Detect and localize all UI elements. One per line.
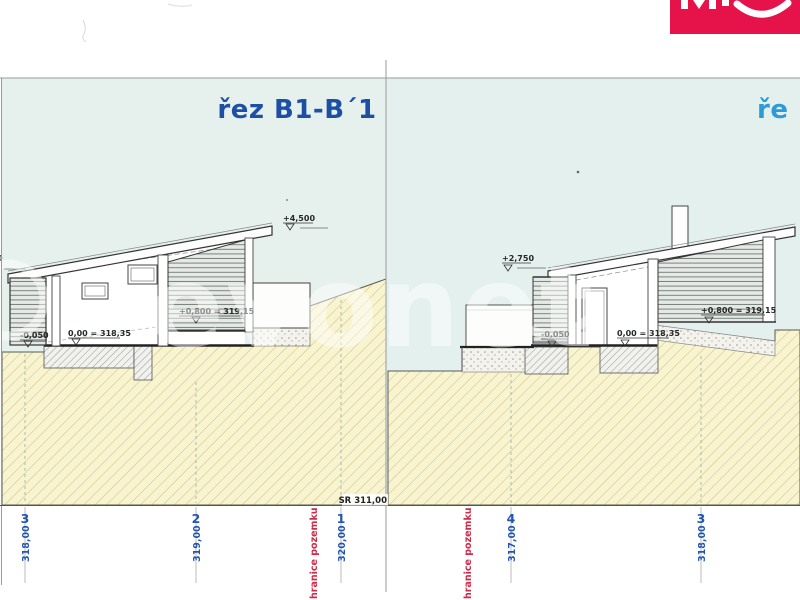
station-number: 4 — [507, 511, 516, 526]
station-elevation: 318,00 — [697, 525, 708, 562]
evonet-logo — [670, 0, 800, 34]
station-elevation: 317,00 — [507, 525, 518, 562]
left-window-1 — [82, 283, 108, 299]
section-drawing-sheet: +4,500 +0,800 = 319,15 0,00 = 318,35 -0,… — [0, 0, 800, 600]
left-section-title: řez B1-B´1 — [217, 95, 376, 125]
left-footing — [44, 346, 134, 368]
station-number: 3 — [697, 511, 706, 526]
station-elevation: 319,00 — [192, 525, 203, 562]
label-upper-floor: +0,800 = 319,15 — [701, 306, 777, 315]
station-number: 2 — [192, 511, 201, 526]
left-wall-post — [52, 276, 60, 346]
right-boundary-label: hranice pozemku — [463, 507, 474, 599]
station-elevation: 318,00 — [21, 525, 32, 562]
label-ridge: +4,500 — [283, 214, 315, 223]
right-section-title: ře — [757, 95, 788, 125]
right-footing-mid — [600, 346, 658, 373]
datum-label: SR 311,00 — [339, 494, 388, 506]
label-floor: 0,00 = 318,35 — [68, 329, 131, 338]
watermark-text: evonet — [148, 243, 595, 373]
station-number: 3 — [21, 511, 30, 526]
datum-text: SR 311,00 — [339, 496, 388, 506]
label-floor: 0,00 = 318,35 — [617, 329, 680, 338]
left-boundary-label: hranice pozemku — [309, 507, 320, 599]
station-number: 1 — [337, 511, 346, 526]
station-elevation: 320,00 — [337, 525, 348, 562]
